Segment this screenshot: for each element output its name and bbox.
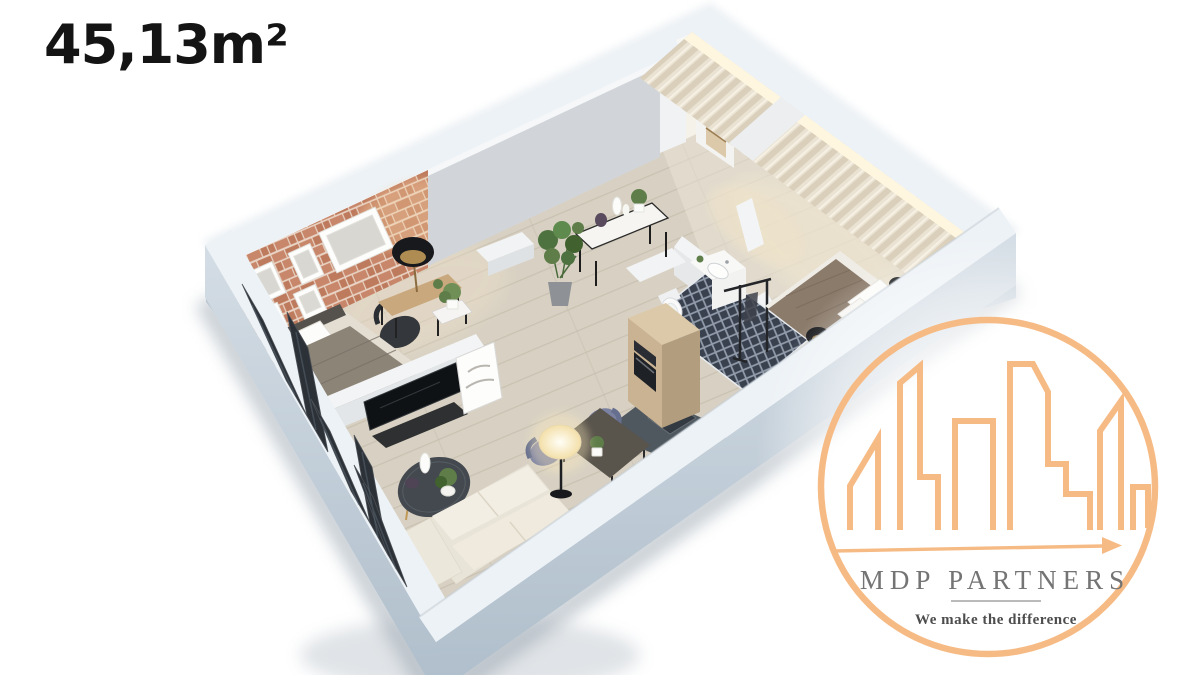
logo-tagline: We make the difference — [915, 612, 1077, 628]
kitchen-column — [628, 303, 700, 428]
purple-vase — [405, 478, 419, 489]
purple-vase — [595, 213, 607, 227]
white-vase-small — [623, 204, 630, 216]
logo-name: MDP PARTNERS — [860, 565, 1130, 595]
white-vase — [420, 453, 430, 473]
console-plant — [631, 189, 647, 205]
page: 45,13m² — [0, 0, 1200, 675]
desk-plant — [433, 279, 443, 289]
white-vase — [613, 197, 622, 215]
floorplan-render: MDP PARTNERS We make the difference — [0, 0, 1200, 675]
